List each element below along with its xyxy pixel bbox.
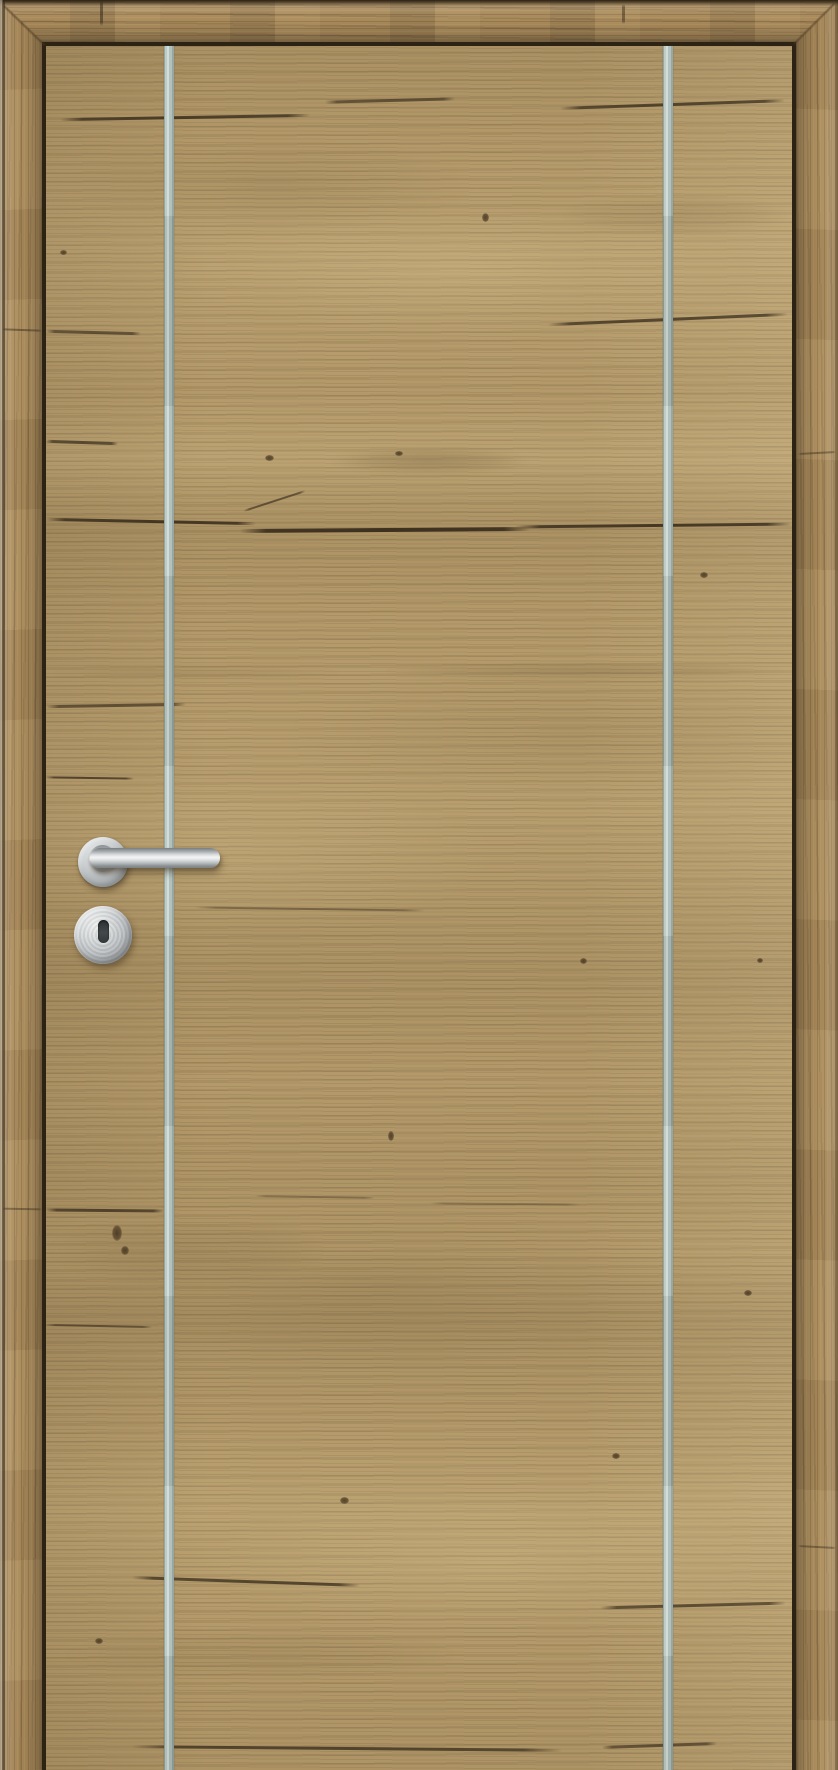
door-frame-left <box>0 0 42 1770</box>
keyhole-escutcheon <box>74 906 132 964</box>
door-leaf <box>42 42 796 1770</box>
door-handle-lever <box>90 848 220 868</box>
inlay-strip-left <box>164 46 174 1770</box>
keyhole-slot <box>98 920 109 943</box>
door-frame-right <box>796 0 838 1770</box>
door-frame-top <box>0 0 838 42</box>
inlay-strip-right <box>663 46 673 1770</box>
door-product-photo <box>0 0 838 1770</box>
